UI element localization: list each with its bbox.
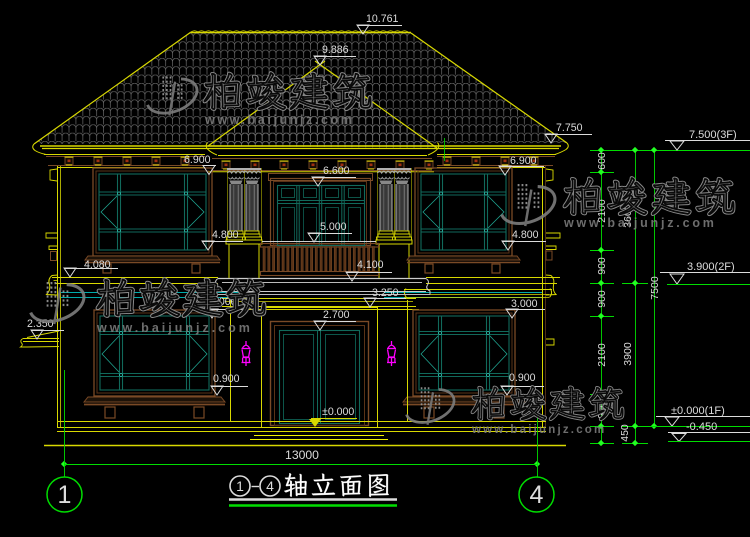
svg-text:www.baijunjz.com: www.baijunjz.com	[204, 113, 354, 127]
svg-text:900: 900	[596, 290, 608, 308]
svg-text:450: 450	[619, 424, 631, 442]
svg-text:3.250: 3.250	[372, 287, 399, 299]
svg-text:5.000: 5.000	[320, 221, 347, 233]
svg-text:3.900(2F): 3.900(2F)	[687, 261, 735, 273]
svg-text:9.886: 9.886	[322, 44, 349, 56]
svg-text:6.900: 6.900	[184, 154, 211, 166]
svg-text:4.800: 4.800	[512, 229, 539, 241]
svg-text:10.761: 10.761	[366, 13, 399, 25]
svg-text:2100: 2100	[596, 343, 608, 367]
svg-text:6.600: 6.600	[323, 165, 350, 177]
svg-text:13000: 13000	[285, 448, 319, 462]
svg-text:3900: 3900	[622, 342, 634, 366]
svg-text:600: 600	[596, 152, 608, 170]
svg-text:4: 4	[266, 478, 274, 494]
svg-text:±0.000(1F): ±0.000(1F)	[671, 405, 725, 417]
svg-text:www.baijunjz.com: www.baijunjz.com	[471, 424, 606, 436]
svg-text:900: 900	[596, 257, 608, 275]
svg-text:2.700: 2.700	[323, 309, 350, 321]
svg-text:0.900: 0.900	[509, 372, 536, 384]
svg-text:0.900: 0.900	[213, 373, 240, 385]
svg-text:4.100: 4.100	[357, 259, 384, 271]
svg-text:4.080: 4.080	[84, 259, 111, 271]
svg-text:www.baijunjz.com: www.baijunjz.com	[96, 321, 253, 335]
svg-text:±0.000: ±0.000	[322, 406, 354, 418]
svg-text:7.750: 7.750	[556, 122, 583, 134]
svg-text:-0.450: -0.450	[686, 421, 717, 433]
svg-text:1: 1	[236, 478, 244, 494]
svg-text:www.baijunjz.com: www.baijunjz.com	[563, 216, 717, 230]
svg-text:3.000: 3.000	[511, 298, 538, 310]
svg-text:7.500(3F): 7.500(3F)	[689, 129, 737, 141]
svg-text:7500: 7500	[649, 276, 661, 300]
svg-text:4: 4	[530, 481, 544, 509]
svg-text:1: 1	[58, 481, 72, 509]
svg-text:6.900: 6.900	[510, 155, 537, 167]
svg-text:4.800: 4.800	[212, 229, 239, 241]
